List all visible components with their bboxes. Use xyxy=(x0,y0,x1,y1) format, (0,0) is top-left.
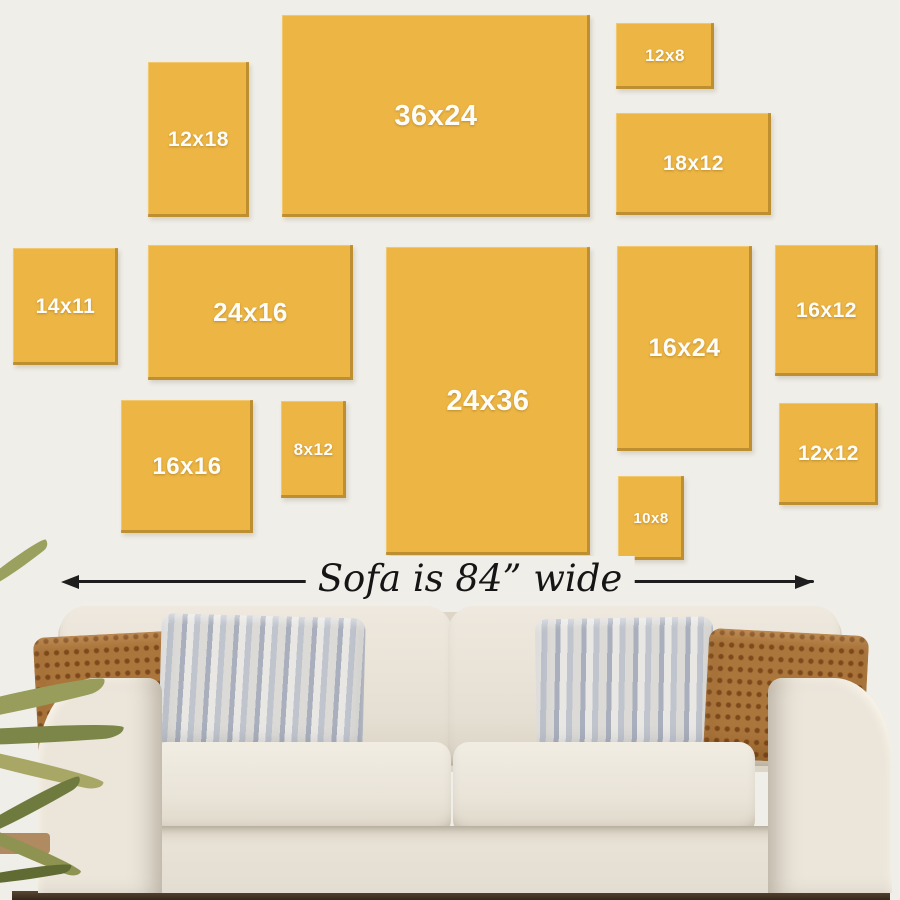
canvas-size-label: 16x16 xyxy=(152,453,221,481)
canvas-10x8: 10x8 xyxy=(618,476,684,560)
canvas-14x11: 14x11 xyxy=(13,248,118,365)
canvas-size-label: 24x36 xyxy=(446,385,529,418)
canvas-24x16: 24x16 xyxy=(148,245,353,380)
arrow-left-icon xyxy=(61,575,79,589)
canvas-size-label: 12x8 xyxy=(645,46,685,66)
canvas-size-label: 10x8 xyxy=(633,510,668,527)
canvas-size-label: 14x11 xyxy=(36,295,96,319)
canvas-size-label: 24x16 xyxy=(213,297,288,328)
sofa-arm-right xyxy=(768,678,892,893)
canvas-12x8: 12x8 xyxy=(616,23,714,89)
canvas-16x24: 16x24 xyxy=(617,246,752,451)
canvas-24x36: 24x36 xyxy=(386,247,590,555)
canvas-size-label: 12x18 xyxy=(168,128,229,152)
canvas-36x24: 36x24 xyxy=(282,15,590,217)
plant-leaf xyxy=(0,535,50,590)
pillow-striped-left xyxy=(158,613,366,756)
canvas-size-label: 36x24 xyxy=(394,100,477,133)
canvas-16x12: 16x12 xyxy=(775,245,878,376)
canvas-size-label: 16x12 xyxy=(796,299,857,323)
canvas-size-label: 8x12 xyxy=(294,440,334,460)
sofa-base xyxy=(60,826,840,893)
canvas-size-label: 16x24 xyxy=(648,334,720,363)
sofa-seat-cushion-left xyxy=(150,742,451,836)
canvas-18x12: 18x12 xyxy=(616,113,771,215)
sofa-seat-cushion-right xyxy=(453,742,755,836)
arrow-right-icon xyxy=(795,575,813,589)
canvas-8x12: 8x12 xyxy=(281,401,346,498)
canvas-size-label: 18x12 xyxy=(663,152,724,176)
wall-art-size-guide: 12x18 36x24 12x8 18x12 14x11 24x16 24x36… xyxy=(0,0,900,900)
sofa-width-label: Sofa is 84” wide xyxy=(306,556,635,602)
canvas-16x16: 16x16 xyxy=(121,400,253,533)
canvas-12x18: 12x18 xyxy=(148,62,249,217)
pillow-striped-right xyxy=(535,616,715,755)
canvas-12x12: 12x12 xyxy=(779,403,878,505)
canvas-size-label: 12x12 xyxy=(798,442,859,466)
